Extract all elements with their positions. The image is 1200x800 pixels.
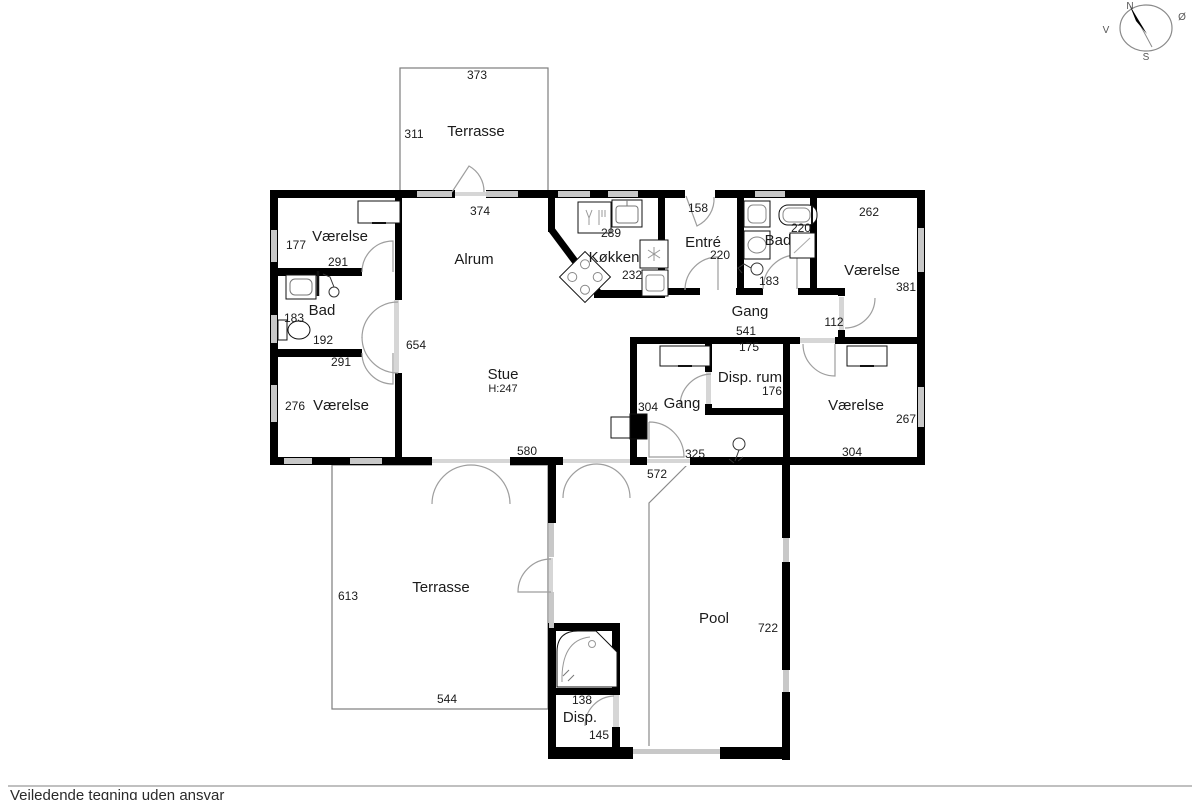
dim-183b: 183 (759, 274, 779, 288)
dim-722: 722 (758, 621, 778, 635)
dim-138: 138 (572, 693, 592, 707)
room-label-gang-s: Gang (664, 395, 701, 412)
pool-edge (649, 464, 688, 746)
wardrobe-icon (847, 346, 887, 366)
room-label-vaerelse-ne: Værelse (844, 262, 900, 279)
dim-220a: 220 (710, 248, 730, 262)
dim-291a: 291 (328, 255, 348, 269)
dim-145: 145 (589, 728, 609, 742)
dim-177: 177 (286, 238, 306, 252)
dim-192: 192 (313, 333, 333, 347)
fixtures (278, 200, 887, 687)
wardrobe-icon (660, 346, 710, 366)
dim-541: 541 (736, 324, 756, 338)
bathroom-sink-icon (286, 275, 316, 299)
compass-icon: N Ø S V (1103, 1, 1186, 63)
wardrobe-icon (358, 201, 400, 223)
spa-tub-icon (557, 631, 617, 687)
dim-304a: 304 (638, 400, 658, 414)
dim-220b: 220 (791, 221, 811, 235)
compass-south-label: S (1143, 52, 1150, 63)
room-label-gang-n: Gang (732, 303, 769, 320)
shower-cabin-icon (744, 201, 770, 227)
floorplan-page: 373 Terrasse 311 374 Alrum Værelse 177 2… (0, 0, 1200, 800)
dim-654: 654 (406, 338, 426, 352)
dim-304b: 304 (842, 445, 862, 459)
room-label-terrasse-s: Terrasse (412, 579, 470, 596)
dim-176: 176 (762, 384, 782, 398)
dim-267: 267 (896, 412, 916, 426)
room-label-bad-w: Bad (309, 302, 336, 319)
room-label-stue: Stue (488, 366, 519, 383)
room-label-vaerelse-se: Værelse (828, 397, 884, 414)
dim-262: 262 (859, 205, 879, 219)
dim-289: 289 (601, 226, 621, 240)
compass-east-label: Ø (1178, 12, 1186, 23)
room-label-disp: Disp. (563, 709, 597, 726)
dim-381: 381 (896, 280, 916, 294)
footer: Vejledende tegning uden ansvar (8, 786, 1192, 800)
compass-west-label: V (1103, 25, 1110, 36)
dim-325: 325 (685, 447, 705, 461)
dim-544: 544 (437, 692, 457, 706)
room-label-koekken: Køkken (589, 249, 640, 266)
dim-291b: 291 (331, 355, 351, 369)
fireplace-icon (611, 414, 647, 439)
dim-374: 374 (470, 204, 490, 218)
dim-175: 175 (739, 340, 759, 354)
room-label-terrasse-top: Terrasse (447, 123, 505, 140)
kitchen-sink-icon (612, 200, 642, 227)
note-h247: H:247 (488, 383, 517, 395)
room-label-vaerelse-nw: Værelse (312, 228, 368, 245)
dim-183a: 183 (284, 311, 304, 325)
dim-580: 580 (517, 444, 537, 458)
freezer-icon (640, 240, 668, 268)
dim-terrasse-top-depth: 311 (404, 127, 423, 141)
room-label-bad-e: Bad (765, 232, 792, 249)
dim-158: 158 (688, 201, 708, 215)
dim-232: 232 (622, 268, 642, 282)
dim-613: 613 (338, 589, 358, 603)
fridge-icon (642, 270, 668, 296)
room-label-pool: Pool (699, 610, 729, 627)
footer-disclaimer: Vejledende tegning uden ansvar (10, 787, 224, 800)
cabinet-icon (790, 233, 815, 258)
dim-112: 112 (824, 315, 843, 329)
floorplan-svg: 373 Terrasse 311 374 Alrum Værelse 177 2… (0, 0, 1200, 800)
room-label-vaerelse-w: Værelse (313, 397, 369, 414)
compass-north-label: N (1126, 1, 1133, 12)
dim-276: 276 (285, 399, 305, 413)
dim-572: 572 (647, 467, 667, 481)
dim-terrasse-top-width: 373 (467, 68, 487, 82)
room-label-alrum: Alrum (454, 251, 493, 268)
